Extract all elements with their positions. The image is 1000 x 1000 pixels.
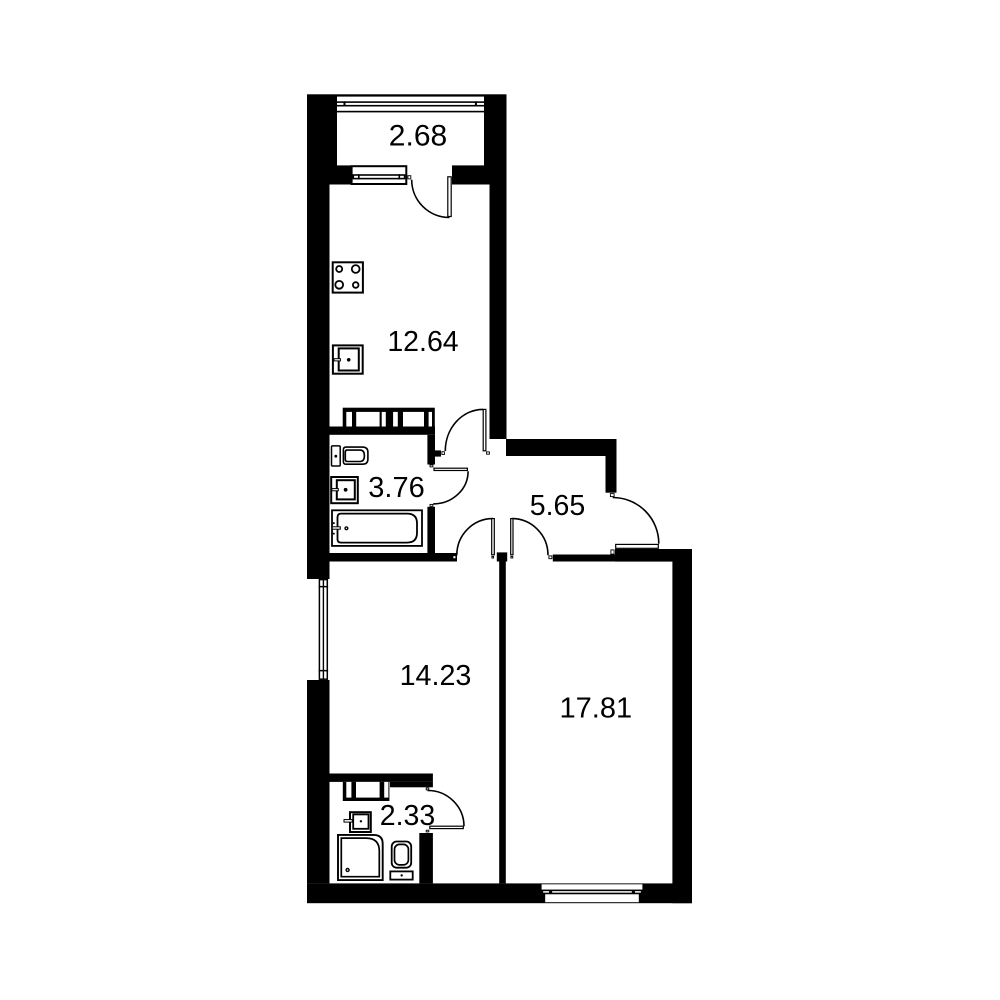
svg-text:2.33: 2.33 <box>380 800 435 832</box>
svg-text:12.64: 12.64 <box>387 326 458 358</box>
svg-text:3.76: 3.76 <box>368 472 424 504</box>
svg-text:14.23: 14.23 <box>400 660 472 692</box>
svg-text:17.81: 17.81 <box>560 692 633 724</box>
svg-text:5.65: 5.65 <box>530 490 585 522</box>
svg-text:2.68: 2.68 <box>389 120 447 153</box>
